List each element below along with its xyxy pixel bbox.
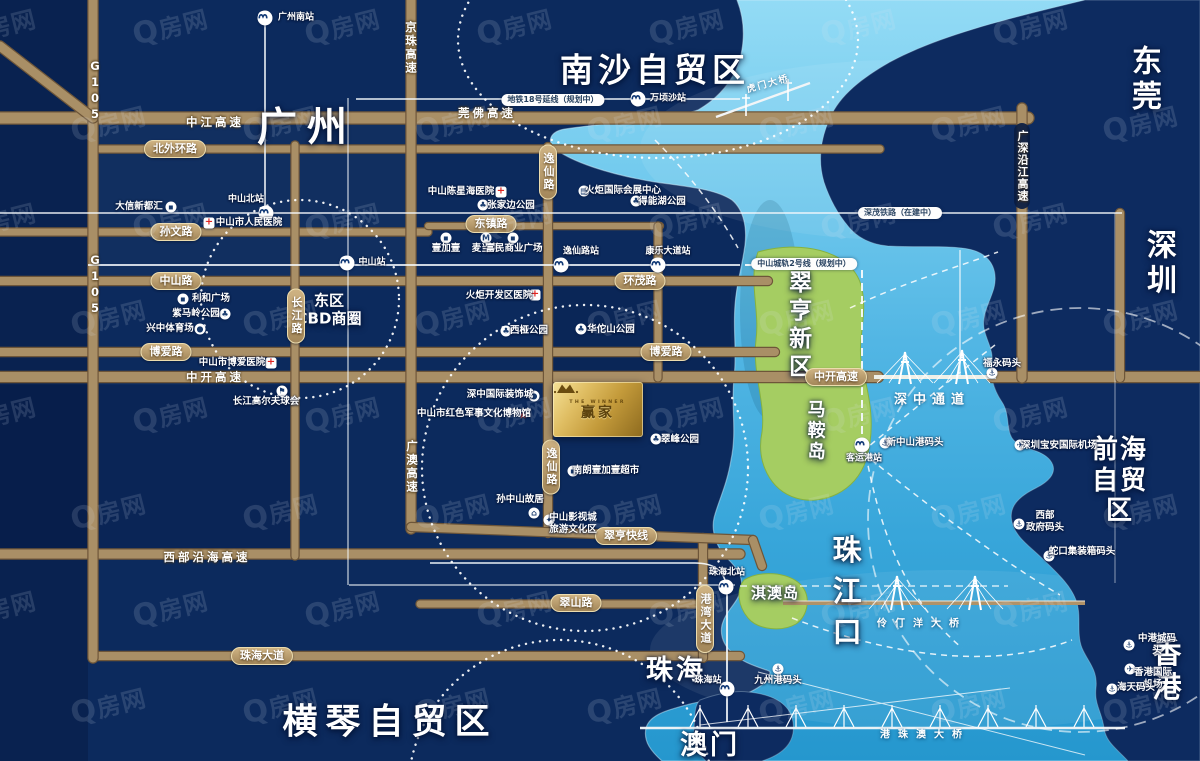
road-label-lingdingyang-bridge: 伶仃洋大桥 [877,615,967,630]
region-label-qiao-island: 淇澳岛 [751,585,799,603]
zhongshan-boai-hospital-icon: + [266,358,277,369]
yixianlu-station-label: 逸仙路站 [563,246,599,257]
rail-label-zhongshan-rail-line2: 中山城轨2号线（规划中） [751,258,857,270]
road-label-yixian-rd-north: 逸仙路 [539,145,557,200]
road-label-guangshen-yanjiang-expwy: 广深沿江高速 [1014,123,1030,209]
project-logo-en: THE WINNER [570,399,626,403]
shenzhong-intl-decoration-city-label: 深中国际装饰城 [467,389,534,401]
road-label-boai-rd-west: 博爱路 [141,343,192,361]
yixianlu-station-icon [554,258,569,273]
region-label-cuiheng-new-area: 翠亨新区 [783,270,810,382]
china-hk-city-pier-icon: ⚓ [1124,640,1135,651]
kangle-ave-station-icon [651,258,666,273]
huatuoshan-park-icon: ♣ [576,324,587,335]
road-label-xibu-coastal-expwy: 西部沿海高速 [164,549,251,565]
new-zhongshan-port-pier-label: 新中山港码头 [886,437,943,449]
haitian-pier-icon: ⚓ [1107,684,1118,695]
region-label-hengqin-ftz: 横琴自贸区 [282,702,497,743]
project-logo-cn: 赢家 [581,405,615,421]
region-label-guangzhou: 广州 [257,104,357,151]
road-label-cuiheng-express: 翠亨快线 [595,527,657,545]
road-label-guangao-expwy: 广澳高速 [404,440,420,494]
rail-label-metro-line18-ext: 地铁18号延线（规划中） [501,94,604,106]
xibu-gov-pier-label: 西部 政府码头 [1026,510,1064,534]
road-label-jingzhu-expwy: 京珠高速 [403,21,419,75]
zhuhai-north-station-icon [719,580,734,595]
cuifeng-park-icon: ♣ [651,434,662,445]
project-logo-thewinner: THE WINNER 赢家 [553,382,643,437]
road-label-yixian-rd-south: 逸仙路 [542,440,560,495]
guangzhou-south-station-label: 广州南站 [278,12,314,23]
zhuhai-station-icon [720,682,735,697]
road-label-boai-rd-east: 博爱路 [641,343,692,361]
wanqingsha-station-icon [631,92,646,107]
road-label-gangwan-ave: 港湾大道 [696,585,714,653]
zhangjiabian-park-label: 张家边公园 [487,200,535,212]
road-label-g105-north: G105 [88,59,102,123]
region-label-dongguan: 东莞 [1125,45,1175,116]
road-label-zhuhai-ave: 珠海大道 [231,647,293,665]
chenxinghai-hospital-label: 中山陈星海医院 [428,186,495,198]
yijiayi-store-icon: ▪ [441,233,452,244]
xingzhong-stadium-label: 兴中体育场 [146,323,194,335]
region-label-nansha-ftz: 南沙自贸区 [560,52,750,91]
shekou-container-pier-label: 蛇口集装箱码头 [1049,546,1116,558]
zhongshan-film-city-label: 中山影视城 旅游文化区 [549,512,597,536]
zhongshan-station-label: 中山站 [358,257,385,268]
rail-label-shenmao-railway: 深茂铁路（在建中） [858,207,942,219]
labels-layer: 广州南沙自贸区东莞深圳前海自贸区香港珠海澳门横琴自贸区珠江口翠亨新区马鞍岛淇澳岛… [0,0,1200,761]
lihe-plaza-icon: ▪ [178,294,189,305]
zimaling-park-label: 紫马岭公园 [172,308,220,320]
china-hk-city-pier-label: 中港城码头 [1136,633,1179,657]
road-label-humen-bridge: 虎门大桥 [745,71,791,96]
road-label-hongkong-zhuhai-macau-bridge: 港珠澳大桥 [880,726,970,741]
daxin-metro-mall-icon: ▪ [166,202,177,213]
region-label-maan-island: 马鞍岛 [804,400,825,463]
kangle-ave-station-label: 康乐大道站 [645,246,690,257]
keyungang-station-label: 客运港站 [846,453,882,464]
jiuzhou-port-pier-icon: ⚓ [773,664,784,675]
torch-zone-hospital-label: 火炬开发区医院 [466,290,533,302]
road-label-shenzhong-corridor: 深中通道 [894,389,970,408]
daxin-metro-mall-label: 大信新都汇 [115,201,163,213]
nanlang-yijiayi-market-label: 南朗壹加壹超市 [573,465,640,477]
project-logo-emblem-icon [553,382,579,395]
fumin-commercial-plaza-label: 富民商业广场 [485,243,542,255]
shenzhen-baoan-intl-airport-label: 深圳宝安国际机场 [1021,440,1097,452]
region-label-macau: 澳门 [680,730,740,761]
road-label-huanmao-rd: 环茂路 [615,272,666,290]
road-label-zhongshan-rd: 中山路 [151,272,202,290]
road-label-zhongkai-expwy-west: 中开高速 [186,369,244,385]
sun-yatsen-residence-icon: ⌂ [529,508,540,519]
changjiang-golf-club-icon: ⚑ [277,386,288,397]
red-military-culture-museum-label: 中山市红色军事文化博物馆 [417,408,531,420]
road-label-cuishan-rd: 翠山路 [551,594,602,612]
zhongshan-peoples-hospital-label: 中山市人民医院 [216,217,283,229]
road-label-beiwai-ring-rd: 北外环路 [144,140,206,158]
huatuoshan-park-label: 华佗山公园 [587,324,635,336]
road-label-dongzhen-rd: 东镇路 [466,215,517,233]
yijiayi-store-label: 壹加壹 [432,243,461,255]
zimaling-park-icon: ♣ [220,309,231,320]
fuyong-pier-label: 福永码头 [983,358,1021,370]
jiuzhou-port-pier-label: 九州港码头 [754,675,802,687]
road-label-guanfo-expwy: 莞佛高速 [458,105,516,121]
wanqingsha-station-label: 万顷沙站 [650,93,686,104]
keyungang-station-icon [855,438,870,453]
changjiang-golf-club-label: 长江高尔夫球会 [233,396,300,408]
mcdonalds-icon: M [481,233,492,244]
zhongshan-station-icon [340,256,355,271]
road-label-zhongjiang-expwy: 中江高速 [186,114,244,130]
region-label-pearl-river-estuary: 珠江口 [828,535,862,658]
lihe-plaza-label: 利和广场 [192,293,230,305]
road-label-zhongkai-expwy-east: 中开高速 [805,368,867,386]
region-label-shenzhen: 深圳 [1146,229,1182,300]
xiya-park-label: 西桠公园 [510,325,548,337]
zhuhai-station-label: 珠海站 [694,675,721,686]
haitian-pier-label: 海天码头 [1117,682,1155,694]
sun-yatsen-residence-label: 孙中山故居 [496,494,544,506]
zhongshan-peoples-hospital-icon: + [204,218,215,229]
zhongshan-north-station-label: 中山北站 [228,194,264,205]
road-label-g105-south: G105 [88,253,102,317]
road-label-changjiang-rd: 长江路 [287,289,305,344]
cuifeng-park-label: 翠峰公园 [661,434,699,446]
denenghu-park-label: 得能湖公园 [638,196,686,208]
zhongshan-boai-hospital-label: 中山市博爱医院 [199,357,266,369]
region-label-east-cbd: 东区 CBD商圈 [297,292,362,327]
location-map: THE WINNER 赢家 广州南沙自贸区东莞深圳前海自贸区香港珠海澳门横琴自贸… [0,0,1200,761]
chenxinghai-hospital-icon: + [496,187,507,198]
guangzhou-south-station-icon [258,11,273,26]
zhuhai-north-station-label: 珠海北站 [709,567,745,578]
fumin-commercial-plaza-icon: ▪ [508,233,519,244]
road-label-sunwen-rd: 孙文路 [151,223,202,241]
xibu-gov-pier-icon: ⚓ [1014,519,1025,530]
xingzhong-stadium-icon: ● [195,324,206,335]
